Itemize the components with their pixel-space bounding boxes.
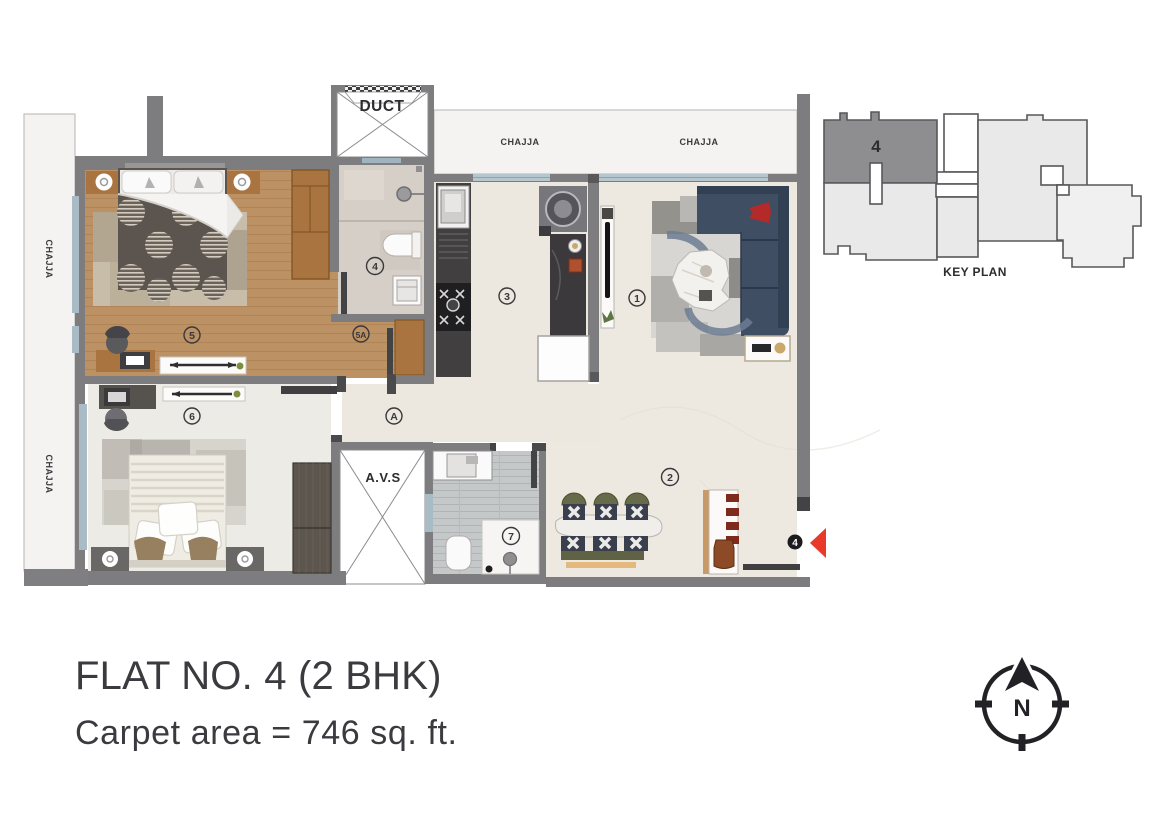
svg-text:6: 6: [189, 411, 195, 423]
svg-text:5: 5: [189, 330, 195, 342]
svg-text:CHAJJA: CHAJJA: [500, 137, 539, 147]
svg-text:4: 4: [372, 261, 378, 273]
svg-text:2: 2: [667, 472, 673, 484]
svg-text:4: 4: [792, 538, 798, 549]
svg-text:CHAJJA: CHAJJA: [44, 454, 54, 493]
svg-text:KEY PLAN: KEY PLAN: [943, 265, 1007, 279]
svg-text:N: N: [1013, 695, 1030, 722]
svg-text:7: 7: [508, 531, 514, 543]
svg-text:CHAJJA: CHAJJA: [44, 239, 54, 278]
svg-text:1: 1: [634, 293, 640, 305]
svg-text:FLAT NO. 4 (2 BHK): FLAT NO. 4 (2 BHK): [75, 654, 442, 698]
svg-text:5A: 5A: [356, 330, 367, 340]
svg-text:Carpet area = 746 sq. ft.: Carpet area = 746 sq. ft.: [75, 714, 458, 752]
svg-text:4: 4: [871, 137, 881, 156]
svg-text:A.V.S: A.V.S: [365, 470, 400, 485]
svg-text:3: 3: [504, 291, 510, 303]
svg-text:CHAJJA: CHAJJA: [679, 137, 718, 147]
svg-text:DUCT: DUCT: [359, 98, 404, 115]
svg-text:A: A: [390, 411, 398, 423]
